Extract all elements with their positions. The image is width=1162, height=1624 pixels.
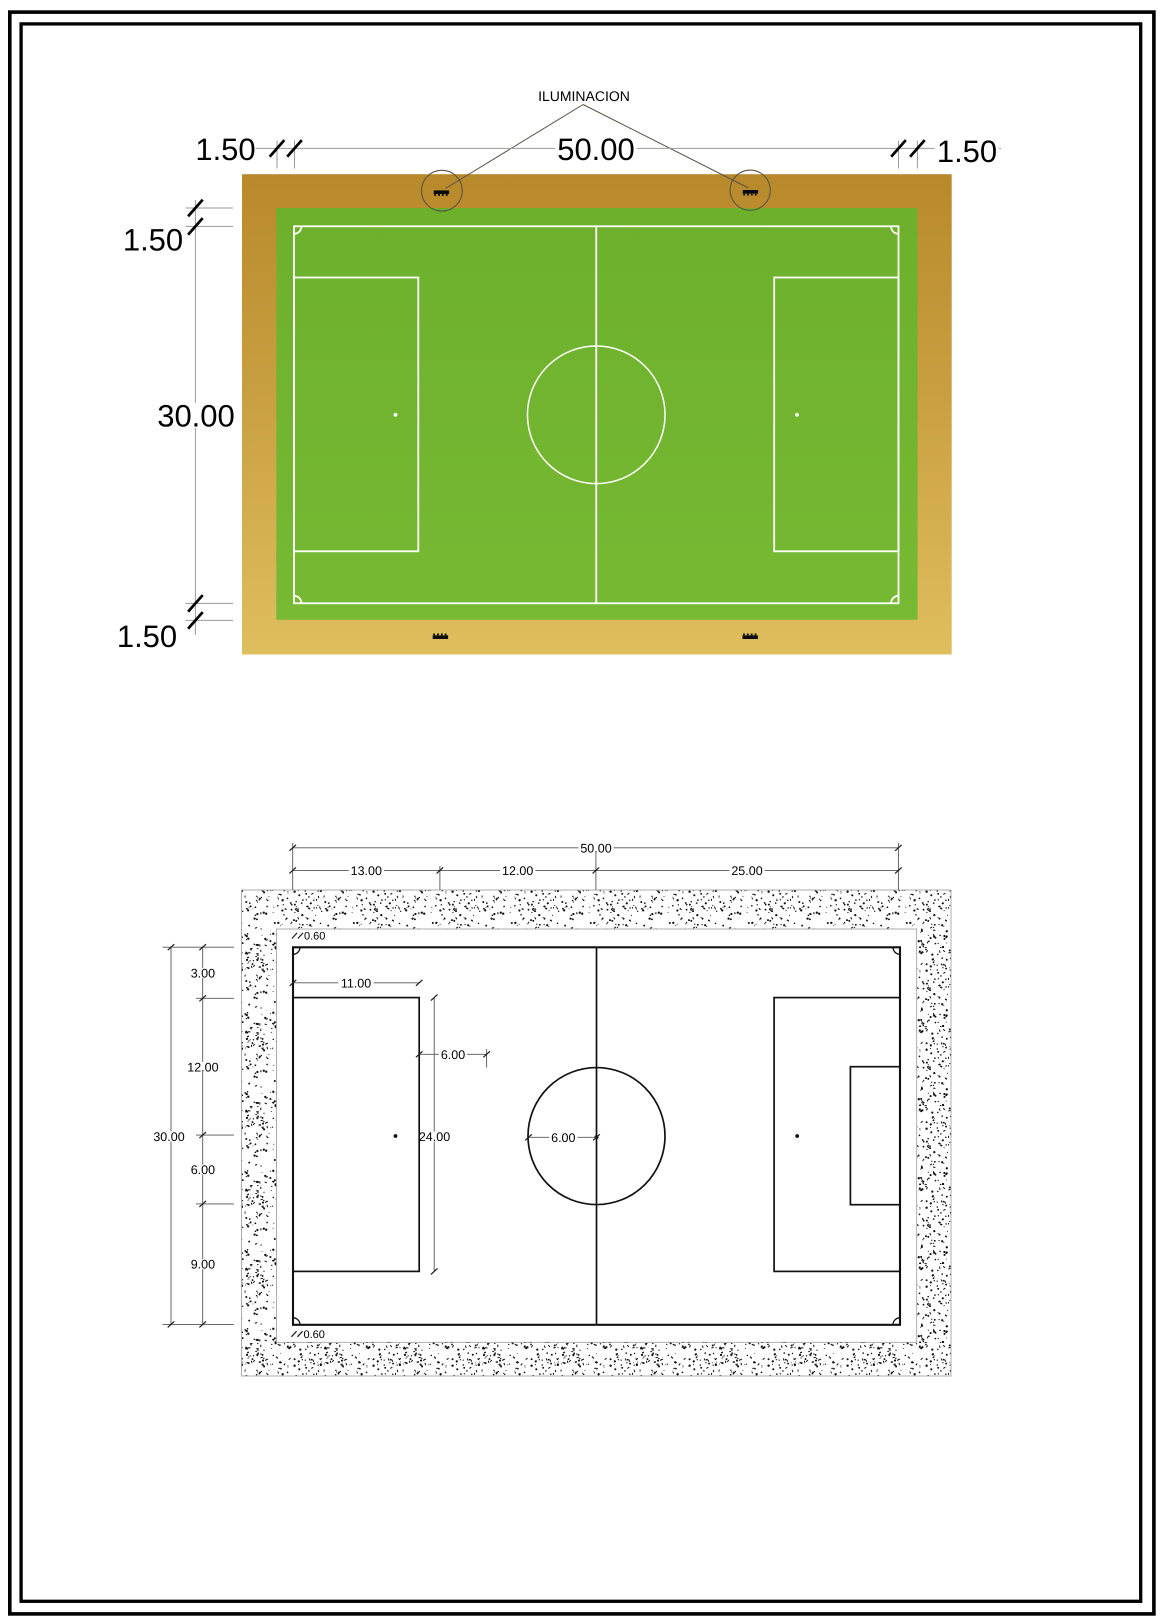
svg-text:25.00: 25.00 xyxy=(731,864,762,878)
svg-text:0.60: 0.60 xyxy=(304,931,325,943)
svg-text:1.50: 1.50 xyxy=(195,132,255,167)
svg-text:30.00: 30.00 xyxy=(157,399,235,434)
svg-text:50.00: 50.00 xyxy=(580,841,611,855)
svg-text:0.60: 0.60 xyxy=(304,1329,325,1341)
svg-text:9.00: 9.00 xyxy=(191,1258,215,1272)
svg-text:50.00: 50.00 xyxy=(557,132,635,167)
svg-text:11.00: 11.00 xyxy=(341,976,371,990)
svg-text:ILUMINACION: ILUMINACION xyxy=(538,88,630,104)
svg-text:13.00: 13.00 xyxy=(351,864,382,878)
svg-text:30.00: 30.00 xyxy=(153,1130,184,1144)
svg-text:6.00: 6.00 xyxy=(191,1163,215,1177)
svg-text:6.00: 6.00 xyxy=(551,1131,575,1145)
svg-text:1.50: 1.50 xyxy=(117,619,177,654)
svg-text:12.00: 12.00 xyxy=(187,1060,218,1074)
svg-text:1.50: 1.50 xyxy=(123,223,183,258)
svg-text:12.00: 12.00 xyxy=(502,864,533,878)
svg-text:1.50: 1.50 xyxy=(937,134,997,169)
svg-text:6.00: 6.00 xyxy=(441,1048,465,1062)
svg-text:24.00: 24.00 xyxy=(419,1130,450,1144)
svg-text:3.00: 3.00 xyxy=(191,966,215,980)
